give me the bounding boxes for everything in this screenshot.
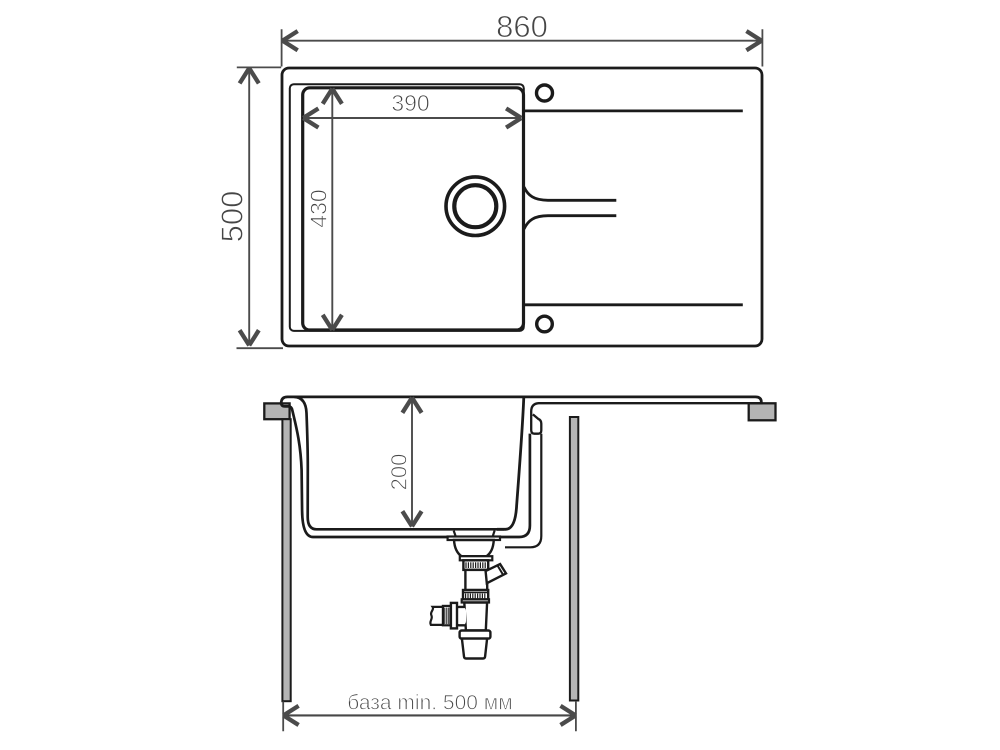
- svg-text:390: 390: [391, 90, 429, 116]
- svg-text:860: 860: [496, 9, 548, 44]
- svg-text:200: 200: [386, 454, 411, 491]
- svg-text:база min. 500 мм: база min. 500 мм: [347, 691, 512, 714]
- svg-text:500: 500: [214, 191, 249, 243]
- svg-text:430: 430: [305, 189, 331, 227]
